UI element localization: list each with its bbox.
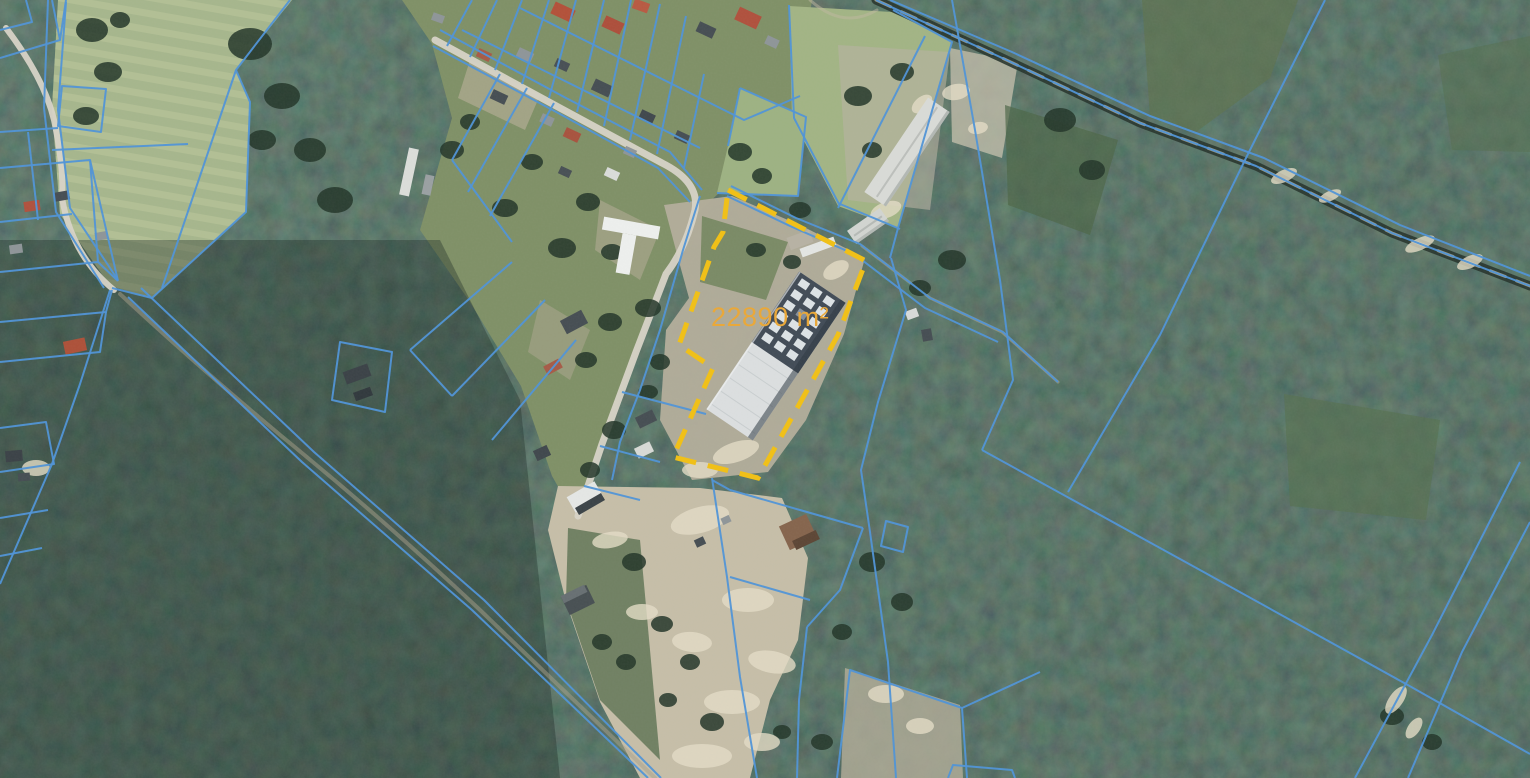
parcel-area-label: 22890 m² (711, 302, 829, 332)
map-viewport[interactable]: 22890 m² (0, 0, 1530, 778)
photo-grain (0, 0, 1530, 778)
aerial-map-canvas[interactable]: 22890 m² (0, 0, 1530, 778)
